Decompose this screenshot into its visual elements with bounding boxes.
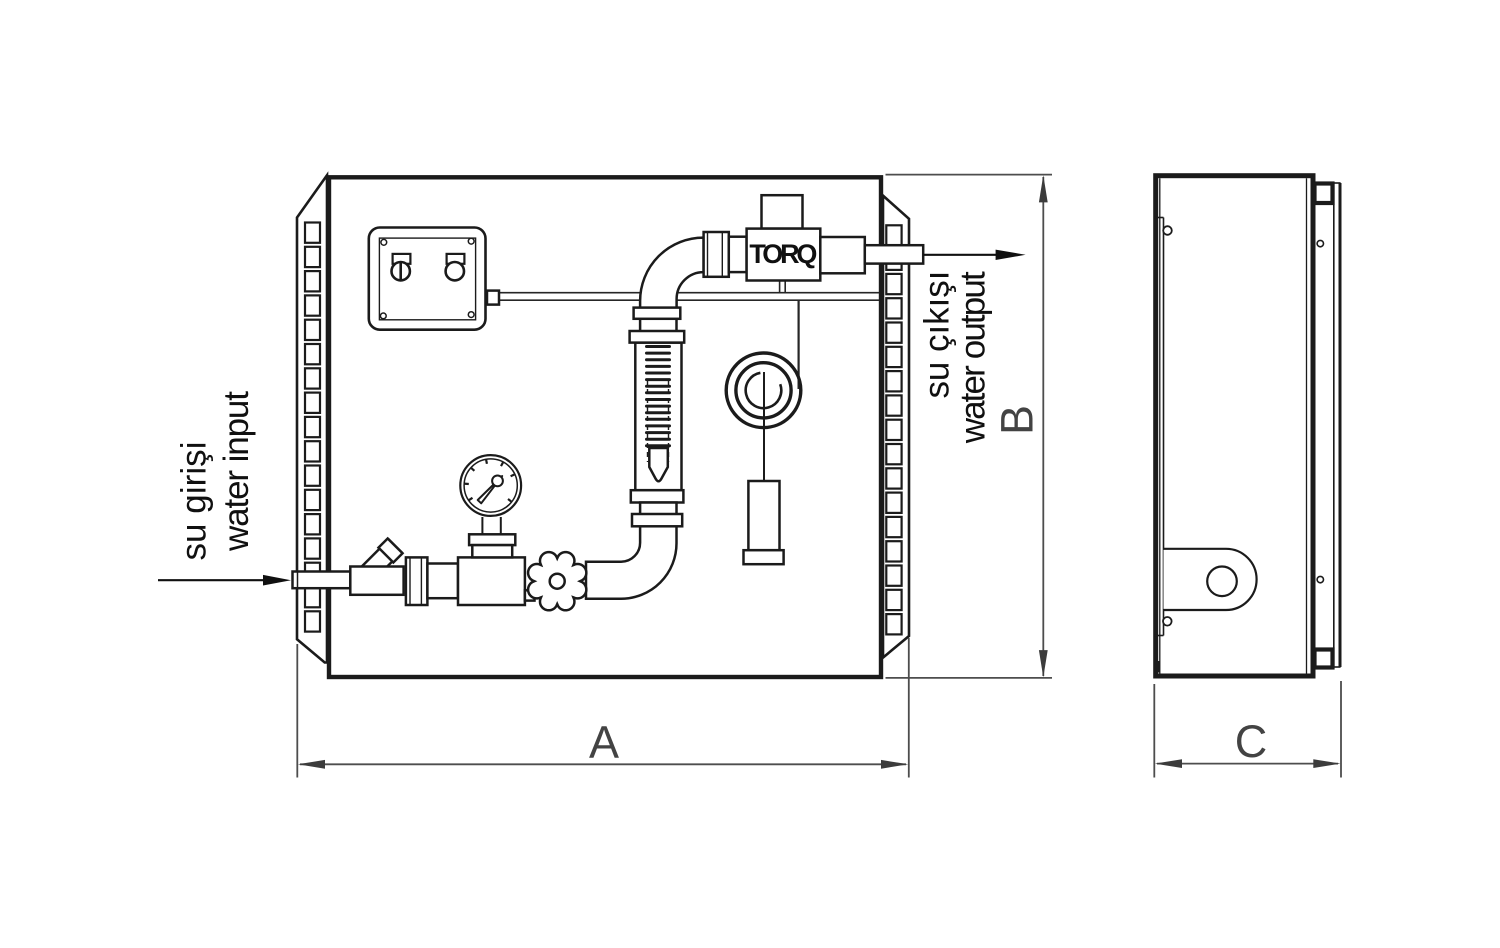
svg-text:su çıkışı: su çıkışı <box>918 271 957 399</box>
svg-text:TORQ: TORQ <box>749 239 817 269</box>
svg-text:water input: water input <box>217 391 256 552</box>
svg-text:su girişi: su girişi <box>175 442 214 561</box>
svg-text:water output: water output <box>954 271 993 444</box>
svg-text:A: A <box>589 717 619 768</box>
svg-text:B: B <box>992 405 1043 435</box>
svg-text:C: C <box>1235 716 1268 767</box>
